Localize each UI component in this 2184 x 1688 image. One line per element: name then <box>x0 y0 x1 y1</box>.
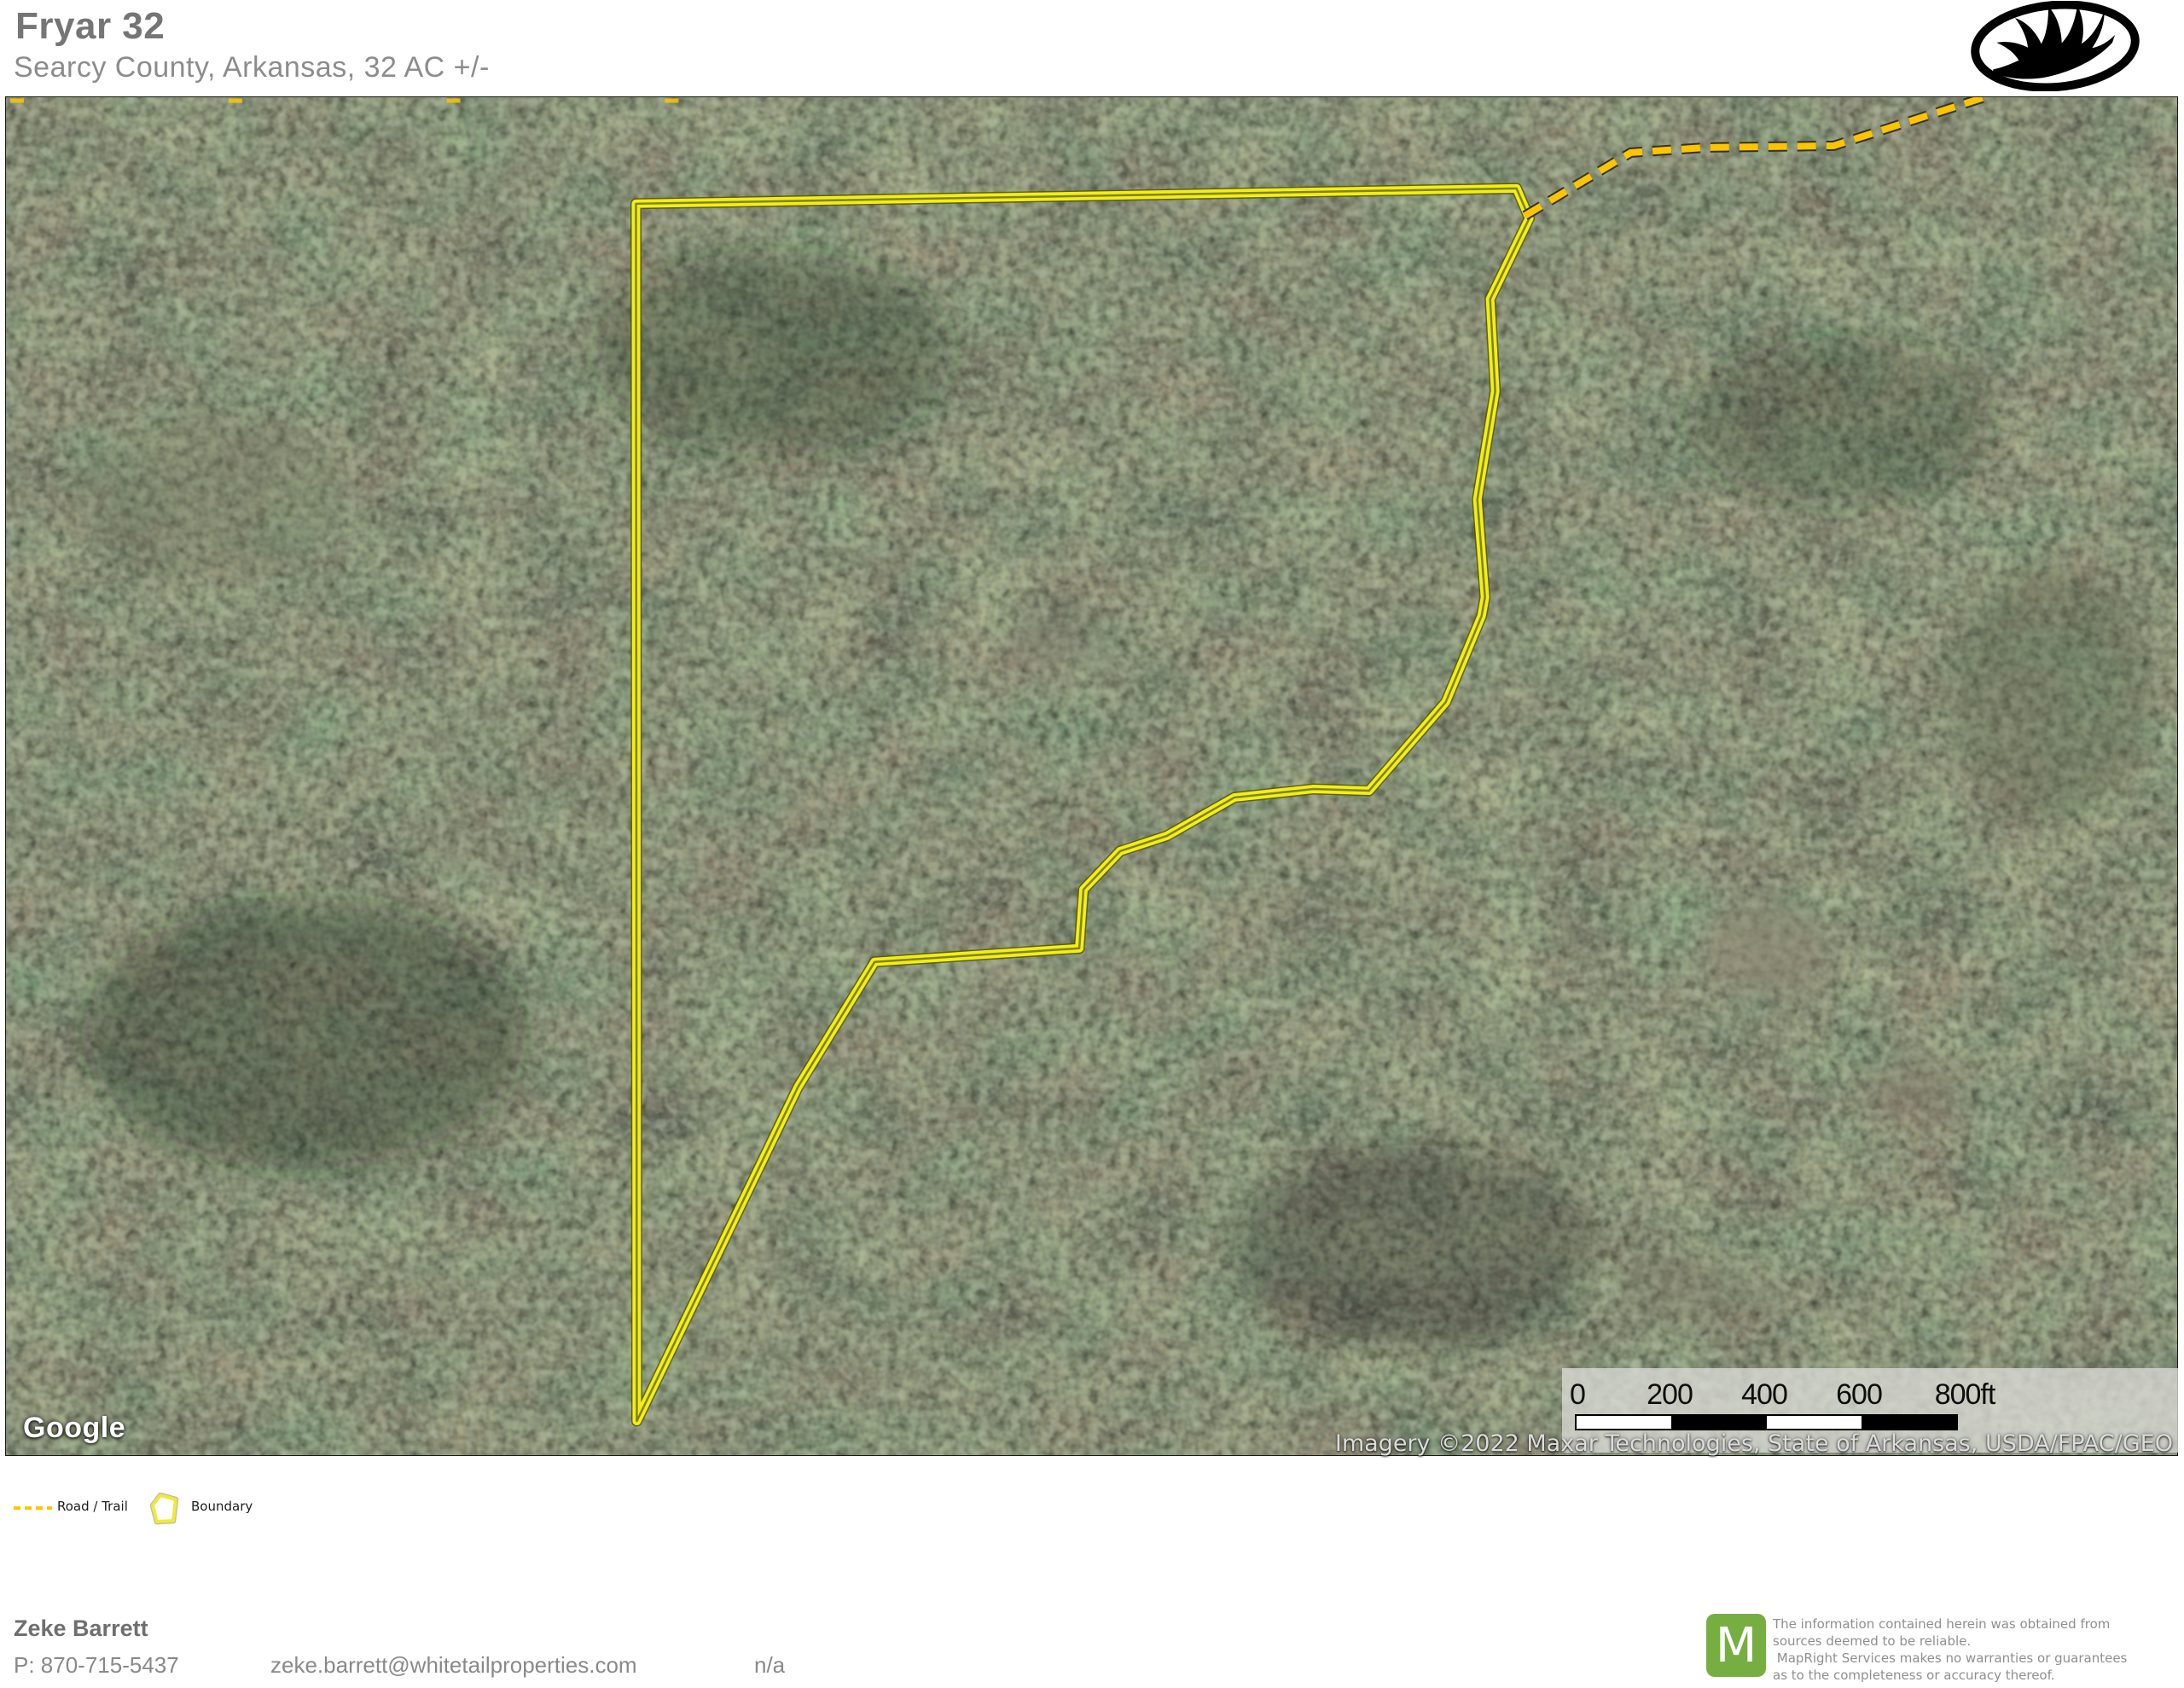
agent-email[interactable]: zeke.barrett@whitetailproperties.com <box>270 1652 637 1679</box>
page-subtitle: Searcy County, Arkansas, 32 AC +/- <box>14 51 490 84</box>
whitetail-properties-antler-logo <box>1969 1 2141 91</box>
scale-tick-label: 200 <box>1647 1378 1693 1412</box>
map-artwork <box>6 97 2177 1455</box>
agent-phone: P: 870-715-5437 <box>14 1652 179 1679</box>
satellite-imagery <box>6 97 2177 1455</box>
road-trail-legend-icon <box>12 1501 53 1515</box>
listing-extra: n/a <box>754 1652 785 1679</box>
map-canvas[interactable]: Google 0 200 400 600 800ft Imagery ©2022… <box>5 96 2178 1456</box>
mapright-logo-letter: M <box>1716 1618 1757 1673</box>
scale-segment <box>1862 1416 1956 1429</box>
legend-road-label: Road / Trail <box>57 1499 128 1514</box>
scale-tick-label: 800ft <box>1935 1378 1995 1412</box>
disclaimer-line: sources deemed to be reliable. <box>1773 1633 2184 1650</box>
scale-segment <box>1671 1416 1766 1429</box>
disclaimer-line: The information contained herein was obt… <box>1773 1615 2184 1633</box>
google-logo[interactable]: Google <box>23 1412 125 1445</box>
disclaimer-text: The information contained herein was obt… <box>1773 1615 2184 1684</box>
mapright-logo: M <box>1706 1614 1766 1677</box>
boundary-legend-icon <box>150 1493 179 1525</box>
map-export-page: Fryar 32 Searcy County, Arkansas, 32 AC … <box>0 0 2184 1688</box>
scale-segment <box>1767 1416 1862 1429</box>
scale-tick-label: 400 <box>1741 1378 1787 1412</box>
page-title: Fryar 32 <box>15 5 165 48</box>
disclaimer-line: as to the completeness or accuracy there… <box>1773 1667 2184 1684</box>
scale-tick-label: 600 <box>1836 1378 1882 1412</box>
imagery-attribution: Imagery ©2022 Maxar Technologies, State … <box>1335 1430 2173 1457</box>
legend-boundary-label: Boundary <box>191 1499 253 1514</box>
scale-bar-segments <box>1575 1414 1958 1430</box>
scale-tick-label: 0 <box>1570 1378 1585 1412</box>
agent-name: Zeke Barrett <box>14 1615 148 1642</box>
scale-segment <box>1577 1416 1671 1429</box>
disclaimer-line: MapRight Services makes no warranties or… <box>1773 1650 2184 1667</box>
